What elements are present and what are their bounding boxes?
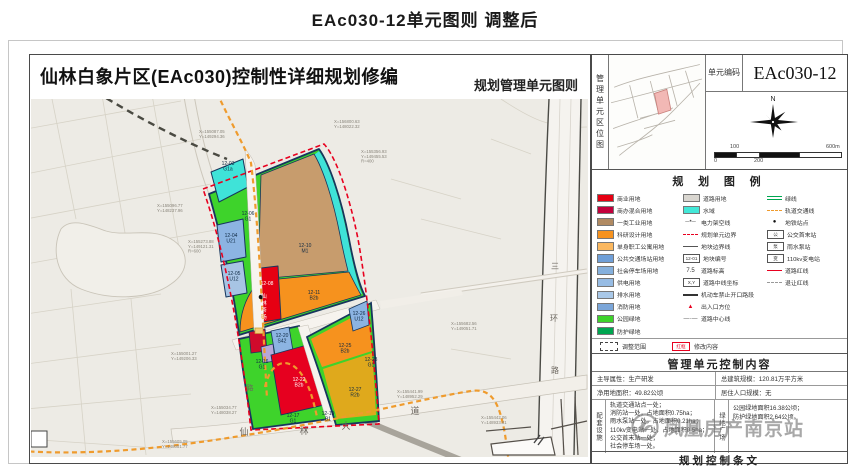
facilities-header: 配套设施 — [592, 400, 606, 453]
svg-text:三: 三 — [551, 262, 559, 271]
control-content-table: 主导属性：生产研发 总建筑规模：120.81万平方米 净用地面积：49.82公顷… — [592, 371, 847, 452]
scale-label-100: 100 — [730, 144, 739, 150]
attr-population: 居住人口规模：无 — [716, 386, 847, 399]
svg-text:X=156800.63Y=148022.32: X=156800.63Y=148022.32 — [334, 119, 360, 129]
unit-code-value: EAc030-12 — [743, 55, 847, 91]
legend-column-2: 道路用地水域─•─电力架空线规划单元边界地块边界线12-01地块编号7.5道路标… — [683, 192, 765, 325]
greens-header: 绿地广场 — [714, 400, 729, 453]
legend-item: 7.5道路标高 — [683, 265, 765, 277]
unit-code-row: 单元编码 EAc030-12 — [706, 55, 847, 92]
minimap-unit-highlight — [654, 89, 671, 114]
modify-item: 红框 修改内容 — [672, 342, 718, 351]
legend-item: ▲出入口方位 — [683, 301, 765, 313]
plan-title: 仙林白象片区(EAc030)控制性详细规划修编 — [40, 63, 399, 89]
svg-text:大: 大 — [341, 420, 350, 431]
legend-item: 轨道交通线 — [767, 204, 845, 216]
legend-item: 道路红线 — [767, 265, 845, 277]
legend-item: 规划单元边界 — [683, 228, 765, 240]
legend-item: 公园绿地 — [597, 313, 681, 325]
svg-text:X=155034.77Y=148038.27: X=155034.77Y=148038.27 — [211, 405, 237, 415]
svg-text:X=155001.27Y=149206.33: X=155001.27Y=149206.33 — [171, 351, 197, 361]
legend-item: 社会停车场用地 — [597, 265, 681, 277]
svg-text:仙: 仙 — [239, 426, 248, 437]
info-panel: 管理单元区位图 单元编码 EAc030-12 — [591, 54, 848, 464]
svg-text:场: 场 — [261, 313, 267, 321]
legend-item: 机动车禁止开口路段 — [683, 289, 765, 301]
legend-item: 商业用地 — [597, 192, 681, 204]
svg-text:路: 路 — [247, 383, 254, 392]
location-section: 管理单元区位图 单元编码 EAc030-12 — [592, 55, 847, 169]
svg-text:仙: 仙 — [261, 292, 267, 300]
svg-text:环: 环 — [550, 314, 558, 323]
attr-dominant-use: 主导属性：生产研发 — [592, 372, 716, 385]
svg-text:林: 林 — [261, 299, 267, 307]
facilities-list: 轨道交通站点一处；消防站一处，占地面积0.75ha；雨水泵站一处，占地面积0.2… — [606, 400, 714, 453]
svg-text:12-03G1a: 12-03G1a — [222, 161, 235, 173]
compass-rose: N — [742, 93, 806, 143]
modify-label: 修改内容 — [694, 342, 718, 351]
attr-net-land-area: 净用地面积：49.82公顷 — [592, 386, 716, 399]
minimap-sketch — [609, 55, 704, 167]
location-label-strip: 管理单元区位图 — [592, 55, 609, 169]
scale-label-0: 0 — [714, 158, 717, 164]
provisions-title: 规划控制条文 — [592, 451, 847, 465]
location-label: 管理单元区位图 — [595, 74, 606, 151]
svg-text:茶: 茶 — [261, 306, 267, 314]
attr-total-floorage: 总建筑规模：120.81万平方米 — [716, 372, 847, 385]
greenspace-list: 公园绿地面积16.38公顷；防护绿地面积2.64公顷。 — [729, 400, 847, 453]
adjust-range-swatch — [600, 342, 618, 351]
unit-code-label: 单元编码 — [706, 55, 743, 91]
control-content-section: 管理单元控制内容 主导属性：生产研发 总建筑规模：120.81万平方米 净用地面… — [592, 353, 847, 452]
map-panel: 仙林白象片区(EAc030)控制性详细规划修编 规划管理单元图则 — [29, 54, 591, 464]
svg-text:12-08: 12-08 — [261, 281, 274, 287]
legend-item: 消防用地 — [597, 301, 681, 313]
legend-item: 商办混合用地 — [597, 204, 681, 216]
legend-item: 泵雨水泵站 — [767, 240, 845, 252]
legend-item: 公公交首末站 — [767, 228, 845, 240]
figure-frame: 仙林白象片区(EAc030)控制性详细规划修编 规划管理单元图则 — [8, 40, 843, 464]
svg-text:X=155441.99Y=148952.29: X=155441.99Y=148952.29 — [397, 389, 423, 399]
svg-text:X=155442.06Y=148933.81: X=155442.06Y=148933.81 — [481, 415, 507, 425]
planning-map: 12-03G1a12-04U2112-05U1212-06G112-10M112… — [31, 99, 588, 457]
compass-area: N 100 — [706, 92, 847, 169]
legend-column-3: 绿线轨道交通线●地铁站点公公交首末站泵雨水泵站变110kv变电站道路红线退让红线 — [767, 192, 845, 289]
legend-section: 规 划 图 例 商业用地商办混合用地一类工业用地科研设计用地单身职工公寓用地公共… — [592, 169, 847, 354]
legend-item: 绿线 — [767, 192, 845, 204]
legend-item: 一类工业用地 — [597, 216, 681, 228]
svg-text:X=155682.56Y=149051.71: X=155682.56Y=149051.71 — [451, 321, 477, 331]
adjust-range-label: 调整范围 — [622, 342, 646, 351]
location-minimap — [609, 55, 706, 169]
svg-text:X=155605.05Y=148051.77: X=155605.05Y=148051.77 — [162, 439, 188, 449]
svg-text:X=155096.77Y=148237.96: X=155096.77Y=148237.96 — [157, 203, 183, 213]
legend-item: 单身职工公寓用地 — [597, 240, 681, 252]
legend-item: 排水用地 — [597, 289, 681, 301]
legend-item: 科研设计用地 — [597, 228, 681, 240]
svg-text:林: 林 — [299, 425, 308, 436]
scale-bar: 100 600m 0 200 — [714, 144, 839, 166]
plan-subtitle: 规划管理单元图则 — [474, 75, 578, 94]
legend-item: 道路用地 — [683, 192, 765, 204]
page-title: EAc030-12单元图则 调整后 — [0, 6, 850, 31]
adjustment-legend-row: 调整范围 红框 修改内容 — [592, 338, 847, 354]
compass-north-label: N — [770, 96, 775, 103]
svg-text:X=155087.05Y=149294.36: X=155087.05Y=149294.36 — [199, 129, 225, 139]
legend-column-1: 商业用地商办混合用地一类工业用地科研设计用地单身职工公寓用地公共交通场站用地社会… — [597, 192, 681, 337]
legend-item: 地块边界线 — [683, 240, 765, 252]
legend-title: 规 划 图 例 — [592, 170, 847, 189]
svg-text:道: 道 — [410, 405, 419, 416]
junction-marker — [255, 328, 263, 334]
legend-item: ●地铁站点 — [767, 216, 845, 228]
scale-label-600m: 600m — [826, 144, 840, 150]
legend-item: 退让红线 — [767, 277, 845, 289]
legend-item: 供电用地 — [597, 277, 681, 289]
planning-sheet-page: { "page": { "title": "EAc030-12单元图则 调整后"… — [0, 0, 850, 466]
legend-item: 公共交通场站用地 — [597, 252, 681, 264]
control-content-title: 管理单元控制内容 — [592, 354, 847, 371]
legend-item: 防护绿地 — [597, 325, 681, 337]
legend-item: 12-01地块编号 — [683, 252, 765, 264]
legend-item: ─•─电力架空线 — [683, 216, 765, 228]
legend-grid: 商业用地商办混合用地一类工业用地科研设计用地单身职工公寓用地公共交通场站用地社会… — [592, 190, 847, 338]
legend-item: 变110kv变电站 — [767, 252, 845, 264]
modify-swatch: 红框 — [672, 342, 690, 351]
svg-text:路: 路 — [551, 365, 559, 375]
scale-label-200: 200 — [754, 158, 763, 164]
legend-item: —·—道路中心线 — [683, 313, 765, 325]
adjust-range-item: 调整范围 — [600, 342, 646, 351]
legend-item: X,Y道路中线坐标 — [683, 277, 765, 289]
legend-item: 水域 — [683, 204, 765, 216]
